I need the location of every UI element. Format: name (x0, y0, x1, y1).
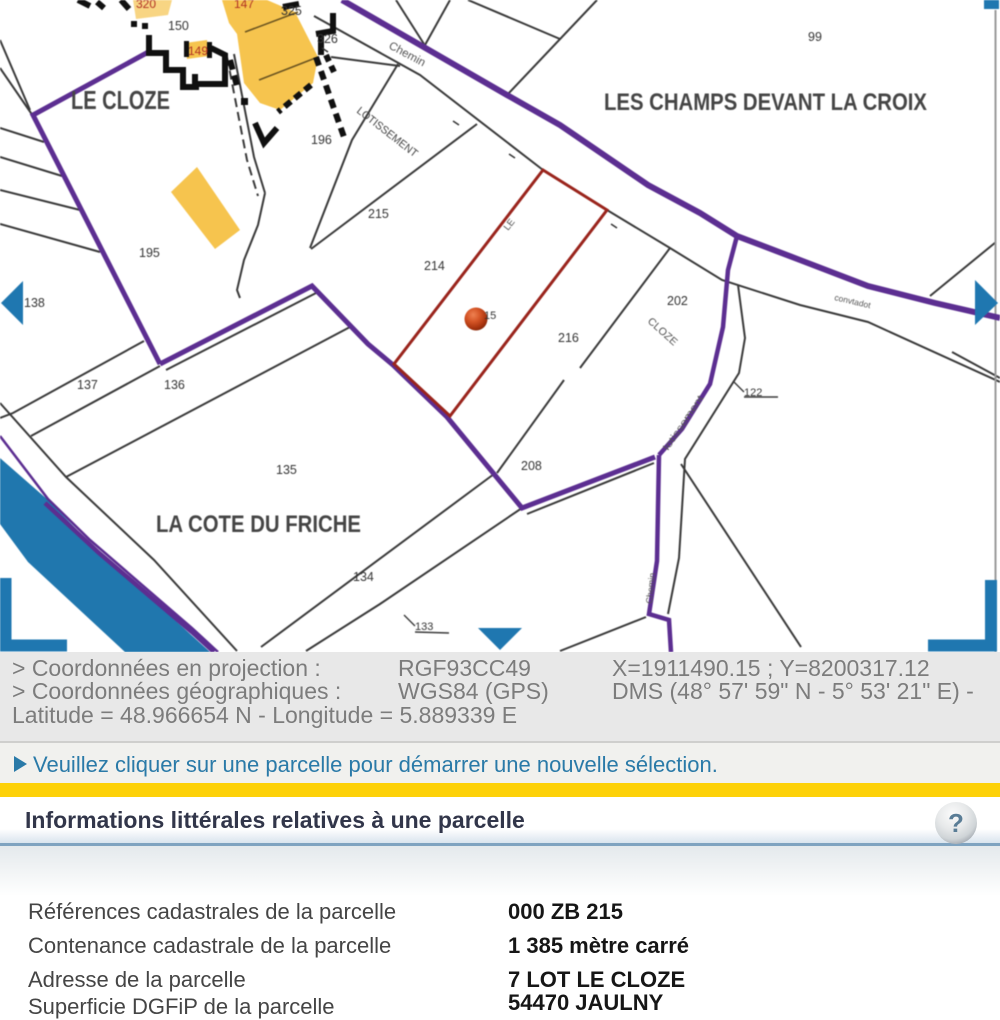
svg-text:150: 150 (168, 19, 189, 33)
svg-text:195: 195 (139, 246, 160, 260)
svg-text:15: 15 (484, 310, 496, 322)
svg-text:convtadot: convtadot (834, 292, 873, 310)
svg-text:149: 149 (188, 44, 208, 58)
svg-text:326: 326 (317, 32, 338, 46)
svg-text:LES CHAMPS DEVANT LA CROIX: LES CHAMPS DEVANT LA CROIX (604, 89, 927, 116)
svg-text:LE CLOZE: LE CLOZE (71, 85, 170, 115)
svg-text:99: 99 (808, 30, 822, 44)
svg-text:138: 138 (24, 296, 45, 310)
svg-text:CLOZE: CLOZE (645, 315, 680, 348)
svg-text:202: 202 (667, 294, 688, 308)
svg-text:136: 136 (164, 378, 185, 392)
svg-text:LA COTE DU FRICHE: LA COTE DU FRICHE (156, 511, 361, 538)
svg-text:?: ? (948, 808, 964, 838)
svg-text:196: 196 (311, 133, 332, 147)
svg-text:134: 134 (353, 570, 374, 584)
svg-text:320: 320 (136, 0, 156, 11)
svg-text:122: 122 (744, 387, 762, 399)
svg-text:lotissement: lotissement (661, 393, 706, 453)
svg-text:214: 214 (424, 259, 445, 273)
svg-text:216: 216 (558, 331, 579, 345)
svg-text:Chemin: Chemin (644, 572, 657, 604)
svg-text:208: 208 (521, 459, 542, 473)
svg-text:215: 215 (368, 207, 389, 221)
svg-text:133: 133 (415, 621, 433, 633)
svg-text:137: 137 (77, 378, 98, 392)
svg-text:LOTISSEMENT: LOTISSEMENT (354, 105, 420, 160)
svg-text:135: 135 (276, 463, 297, 477)
svg-text:147: 147 (234, 0, 254, 11)
svg-text:325: 325 (281, 4, 302, 18)
